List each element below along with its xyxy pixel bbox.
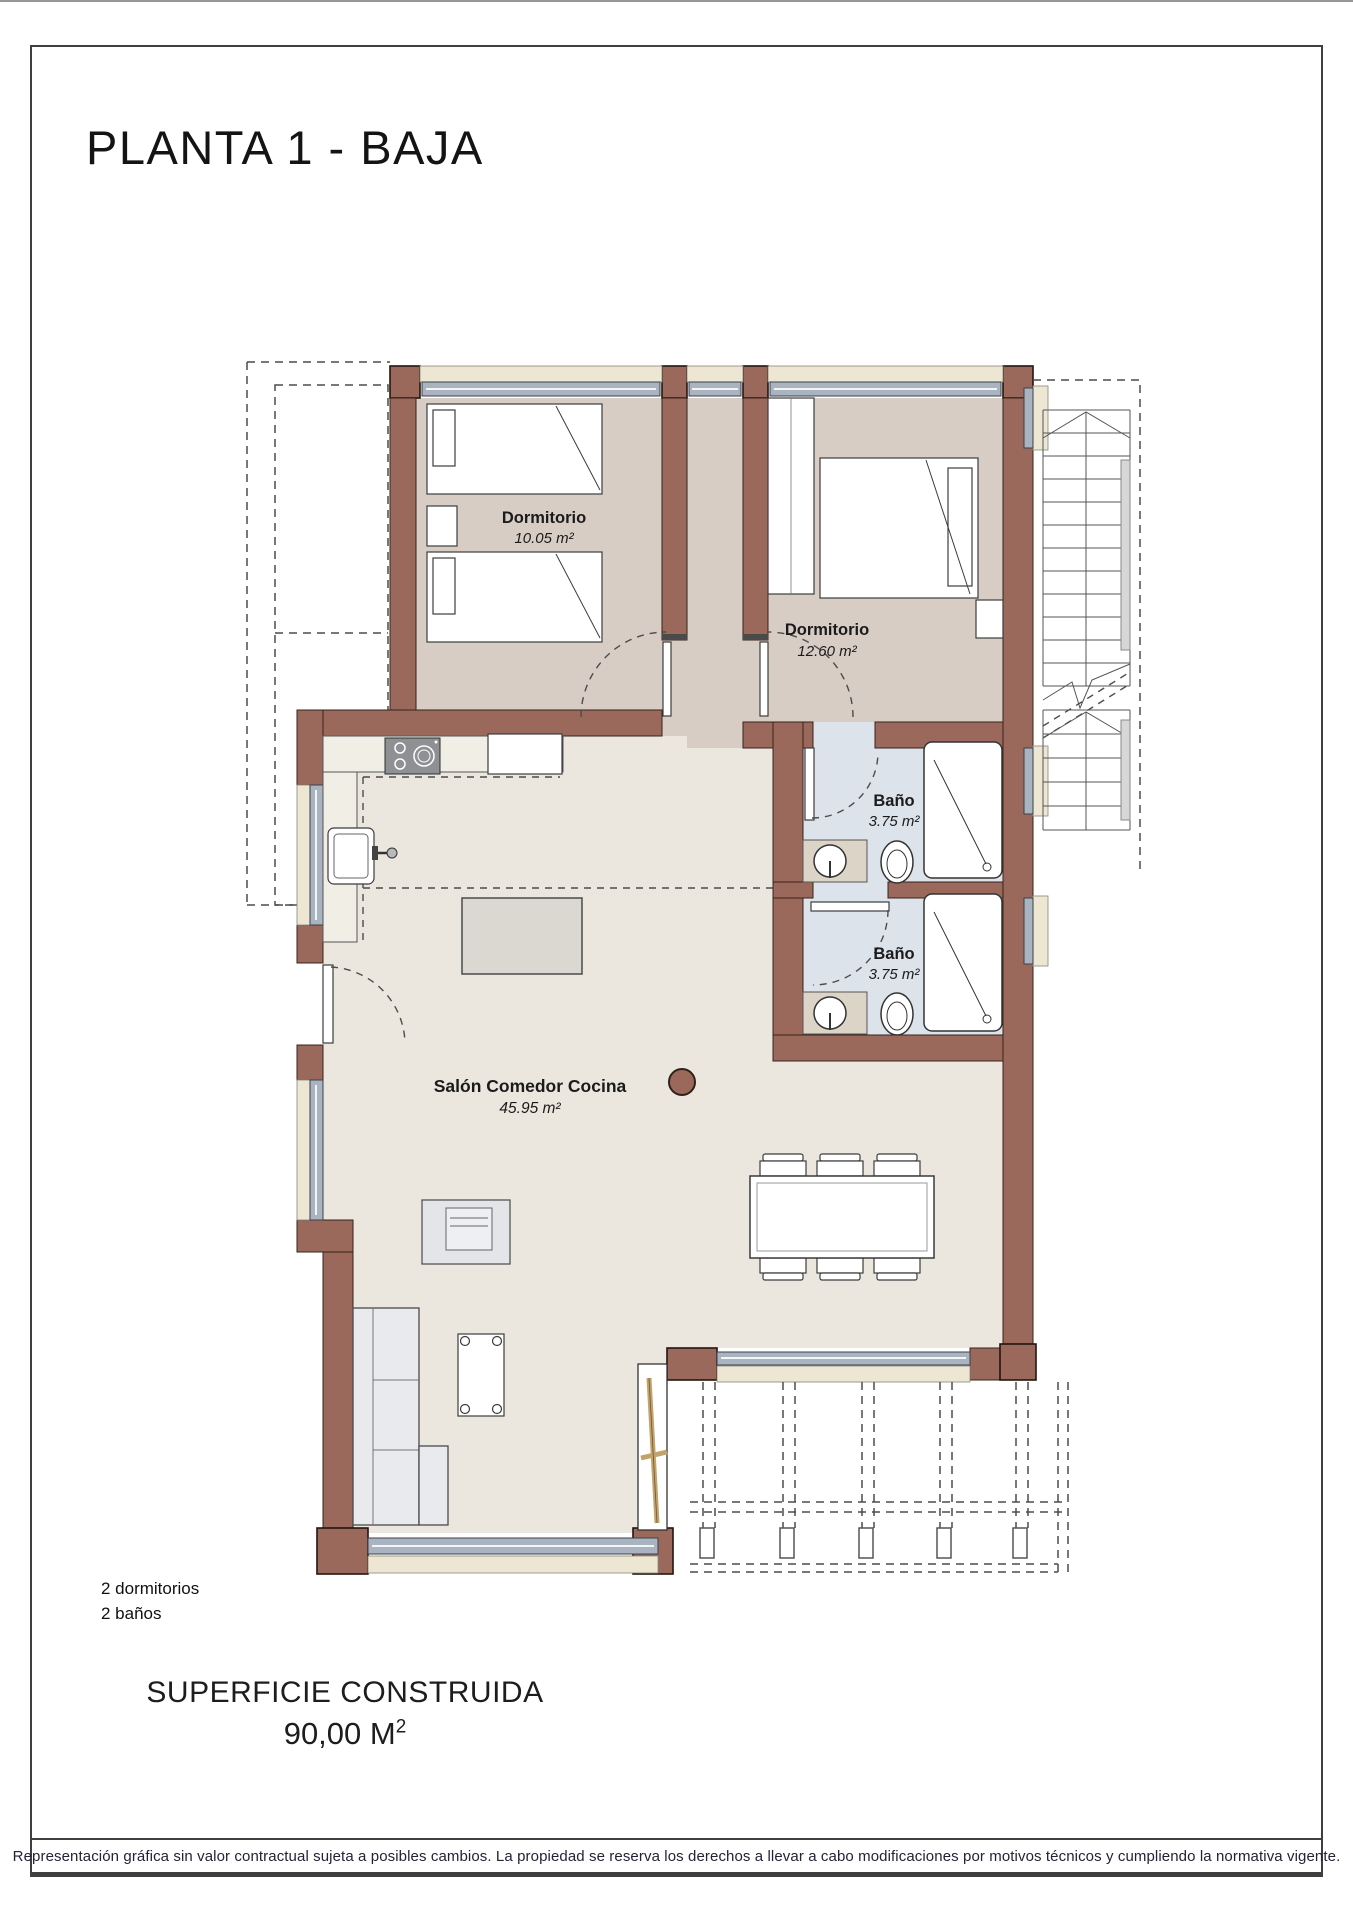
footer-disclaimer: Representación gráfica sin valor contrac… xyxy=(32,1838,1321,1872)
page-frame: Representación gráfica sin valor contrac… xyxy=(30,45,1323,1877)
page-top-line xyxy=(0,0,1353,2)
page: PLANTA 1 - BAJA xyxy=(0,0,1353,1919)
